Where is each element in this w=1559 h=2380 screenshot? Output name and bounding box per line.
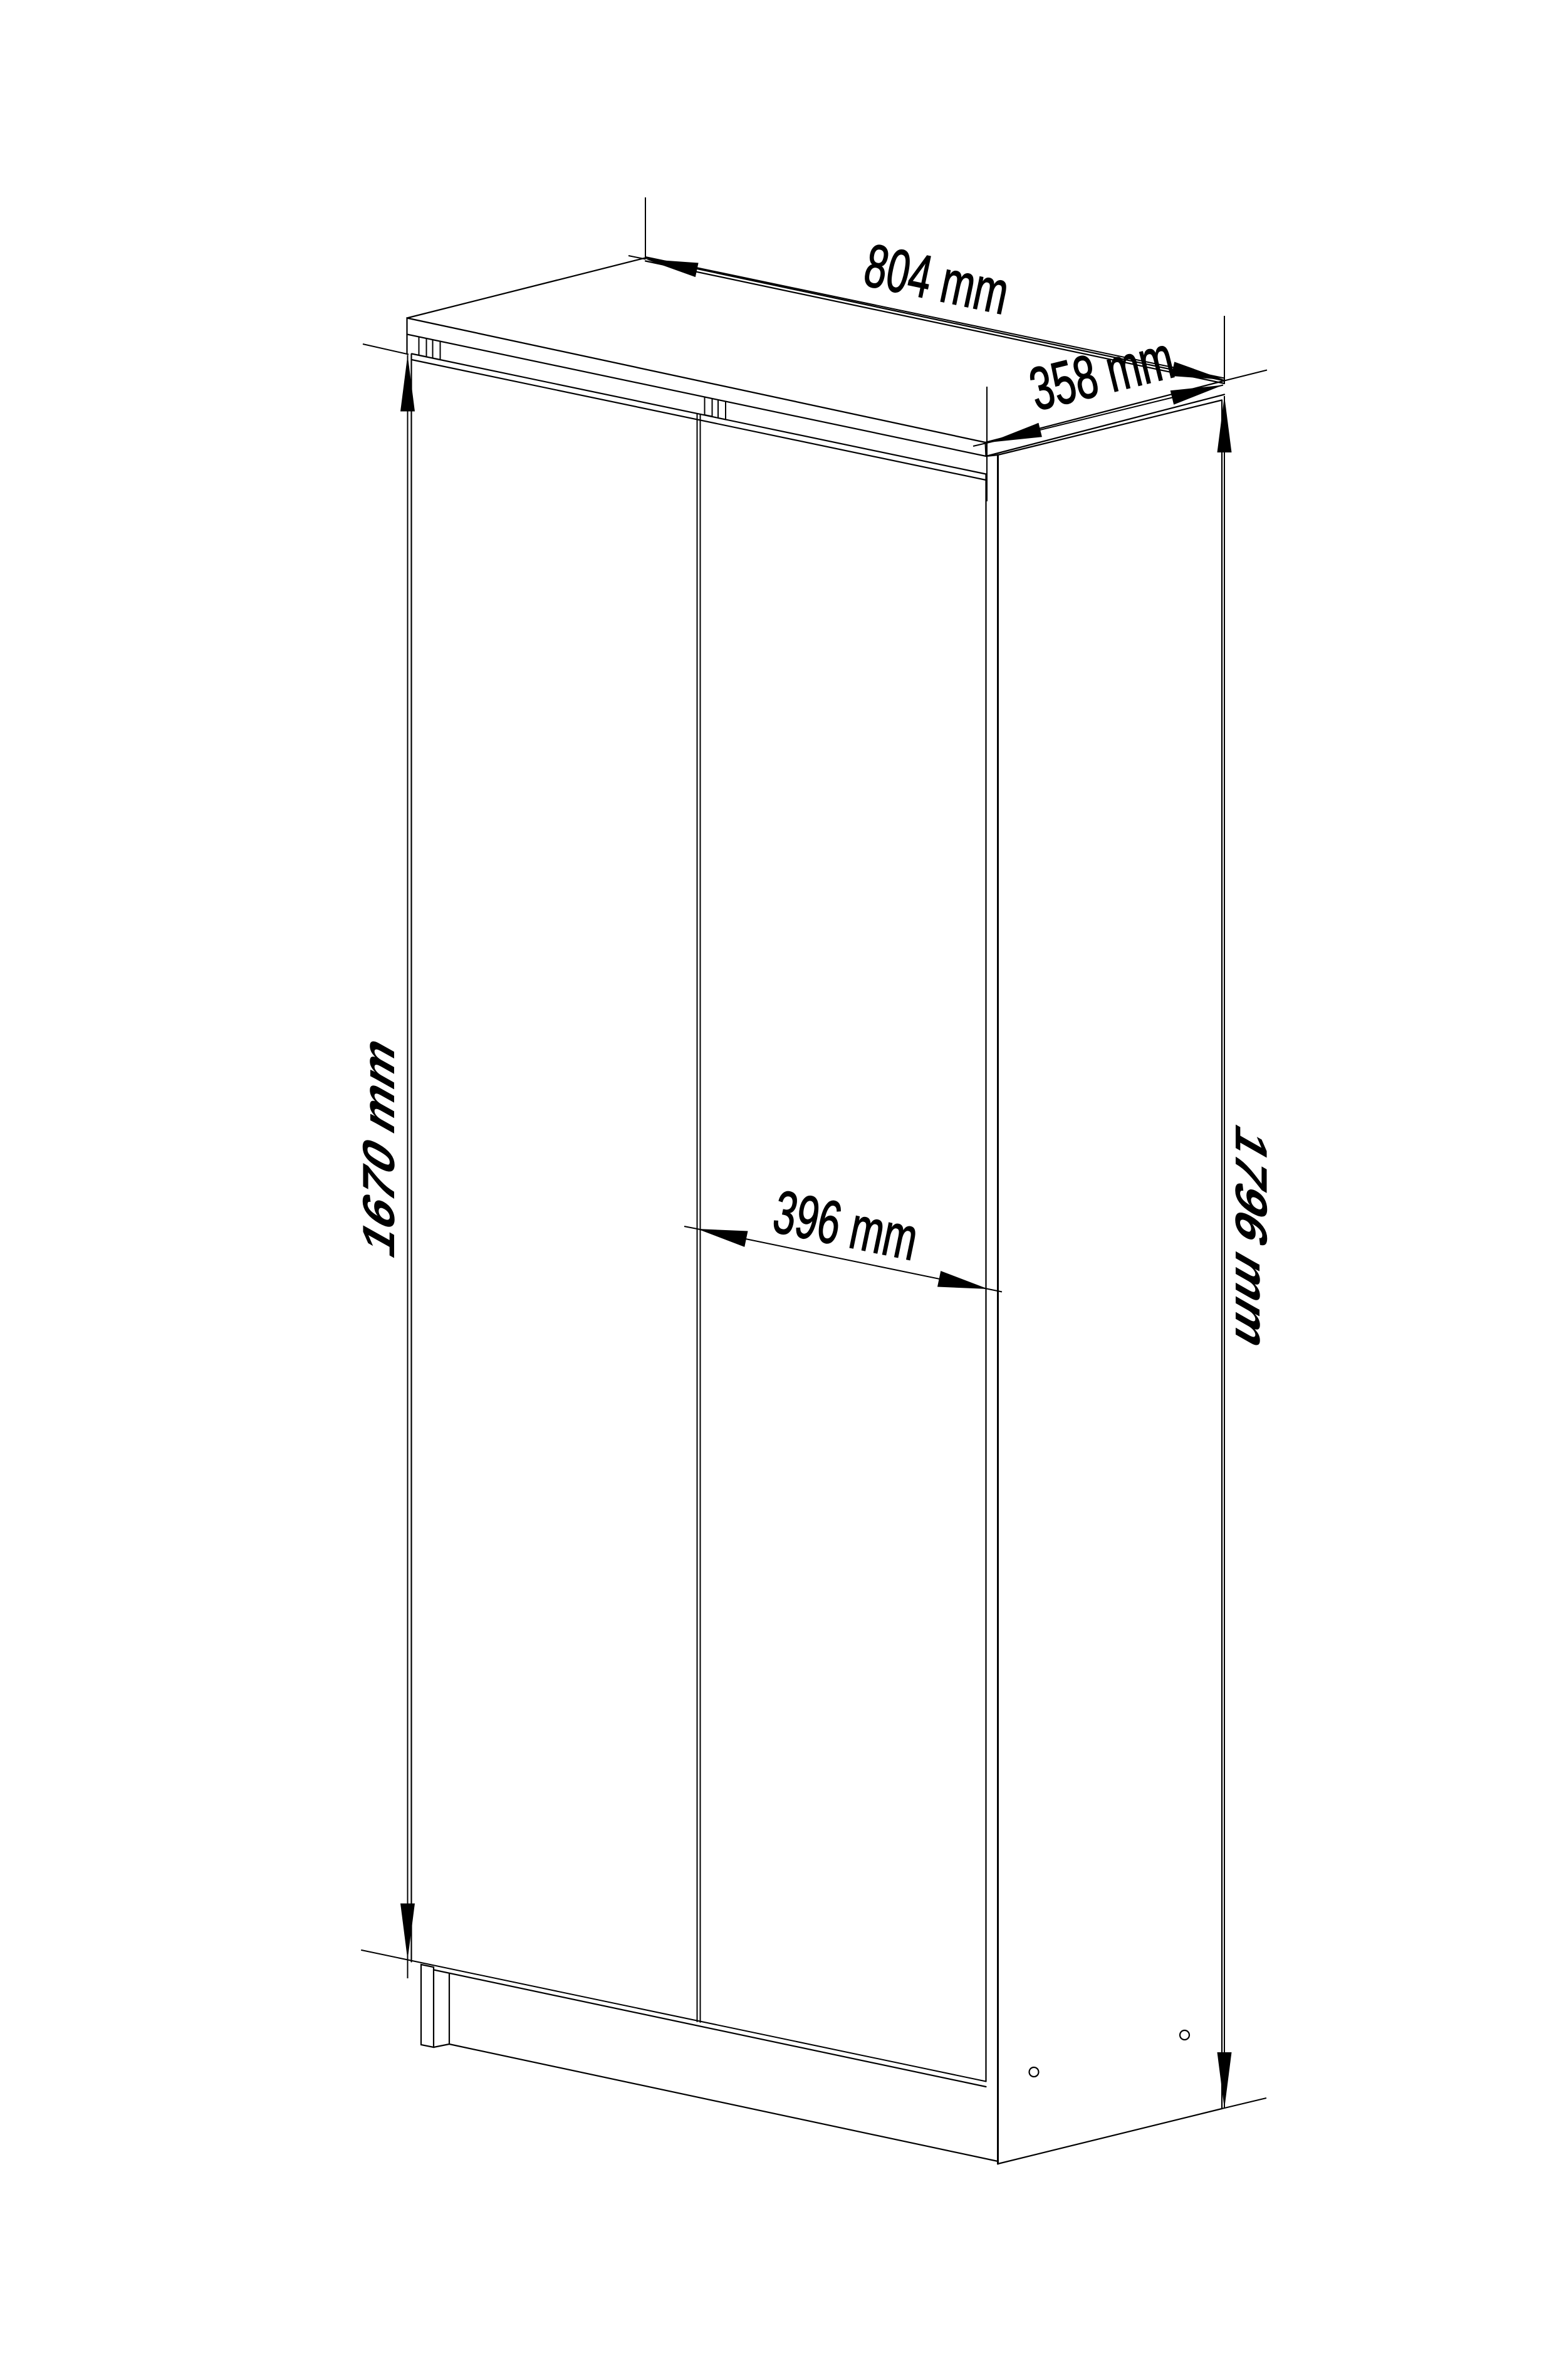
svg-text:1796 mm: 1796 mm [1226,1115,1276,1360]
svg-text:1670 mm: 1670 mm [354,1026,404,1267]
